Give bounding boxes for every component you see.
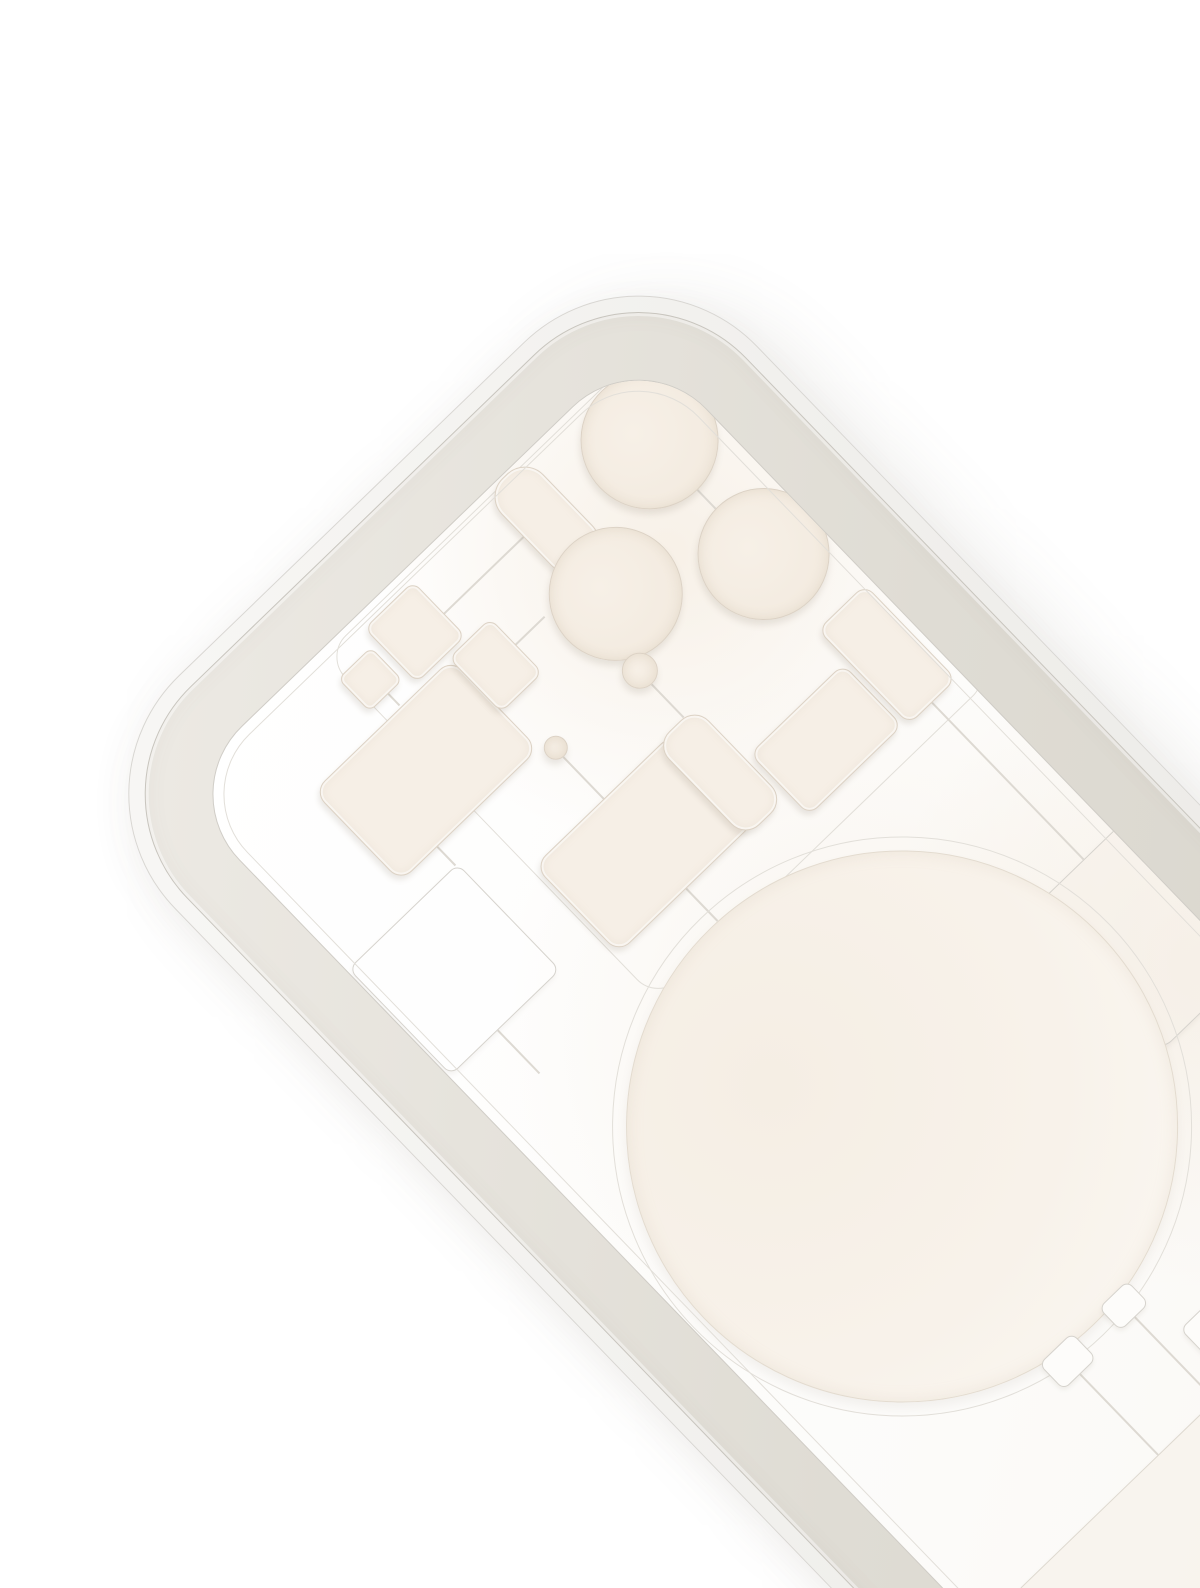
channel-line-12 xyxy=(497,1030,540,1075)
back-glass-protection-mold xyxy=(60,227,1200,1588)
bottom-tab-outline-3 xyxy=(1180,1296,1200,1357)
photo-background xyxy=(0,0,1200,1588)
channel-line-10 xyxy=(1079,1374,1158,1456)
channel-line-9 xyxy=(437,846,456,866)
